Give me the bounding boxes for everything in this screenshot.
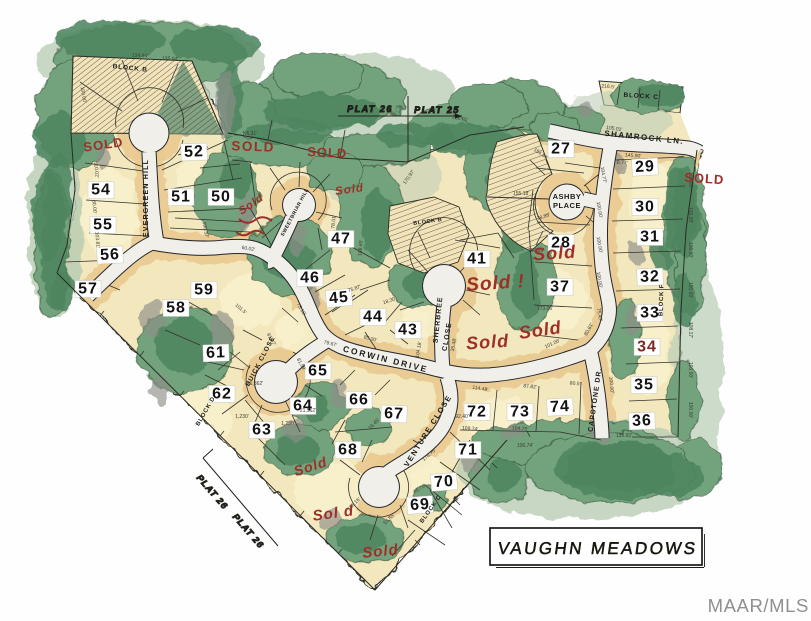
svg-text:135.92′: 135.92′ <box>616 433 632 439</box>
svg-text:63: 63 <box>252 422 272 439</box>
svg-text:37: 37 <box>550 279 570 296</box>
svg-text:Sold !: Sold ! <box>466 271 526 296</box>
svg-text:Sold: Sold <box>532 242 576 265</box>
svg-text:MAAR/MLS: MAAR/MLS <box>708 595 809 616</box>
svg-text:100.00′: 100.00′ <box>687 362 693 378</box>
svg-text:30: 30 <box>635 199 655 216</box>
svg-text:32: 32 <box>640 268 660 286</box>
svg-text:SOLD: SOLD <box>231 138 275 155</box>
svg-text:SOLD: SOLD <box>307 144 348 161</box>
svg-text:PLAT 26: PLAT 26 <box>347 104 393 114</box>
svg-text:B.77′: B.77′ <box>616 160 628 167</box>
svg-text:1,230′: 1,230′ <box>235 414 249 420</box>
svg-text:PLAT 25: PLAT 25 <box>414 105 460 115</box>
svg-text:44: 44 <box>363 309 383 326</box>
svg-text:74: 74 <box>550 398 571 416</box>
svg-text:BLOCK F: BLOCK F <box>658 284 665 316</box>
svg-text:70: 70 <box>434 473 455 491</box>
svg-text:43: 43 <box>398 322 418 339</box>
svg-text:57: 57 <box>78 281 98 298</box>
svg-text:31: 31 <box>640 229 660 246</box>
svg-text:45: 45 <box>328 289 349 308</box>
svg-text:PLACE: PLACE <box>553 201 581 210</box>
svg-text:80.00′: 80.00′ <box>90 200 97 214</box>
svg-text:51: 51 <box>171 189 191 206</box>
svg-text:92.40′: 92.40′ <box>455 414 469 420</box>
svg-text:54: 54 <box>91 182 111 199</box>
svg-text:65: 65 <box>308 363 328 380</box>
svg-text:58: 58 <box>166 300 186 317</box>
svg-text:34: 34 <box>637 339 657 356</box>
svg-text:100.00′: 100.00′ <box>687 242 693 258</box>
svg-text:134.94′: 134.94′ <box>132 53 149 60</box>
svg-text:47: 47 <box>331 231 351 248</box>
svg-text:108.17′: 108.17′ <box>687 322 693 338</box>
svg-text:78.01′: 78.01′ <box>330 215 337 229</box>
svg-text:61: 61 <box>206 344 226 362</box>
svg-text:73: 73 <box>510 404 530 421</box>
svg-text:EVERGREEN HILL: EVERGREEN HILL <box>143 159 150 237</box>
svg-text:173.06′: 173.06′ <box>537 306 553 312</box>
svg-text:66: 66 <box>349 392 369 409</box>
svg-text:46: 46 <box>300 270 320 287</box>
svg-text:21,362′: 21,362′ <box>247 381 263 387</box>
svg-text:52: 52 <box>184 143 204 161</box>
svg-text:35: 35 <box>634 377 654 394</box>
svg-text:33: 33 <box>640 305 660 322</box>
svg-text:100.00′: 100.00′ <box>687 282 693 298</box>
svg-text:216.5′: 216.5′ <box>601 84 615 91</box>
svg-text:27: 27 <box>551 141 571 158</box>
svg-text:41: 41 <box>467 251 487 268</box>
svg-text:100.00′: 100.00′ <box>687 402 693 418</box>
svg-text:68: 68 <box>338 442 358 459</box>
svg-text:Sold: Sold <box>465 331 509 354</box>
svg-text:67: 67 <box>384 405 404 423</box>
svg-text:29: 29 <box>635 158 656 176</box>
svg-text:135.04′: 135.04′ <box>162 56 179 63</box>
svg-text:71: 71 <box>458 442 478 459</box>
svg-text:36: 36 <box>632 412 652 430</box>
svg-text:1,250′: 1,250′ <box>281 421 295 427</box>
svg-text:155.18′: 155.18′ <box>513 191 529 197</box>
svg-text:87.82′: 87.82′ <box>523 383 537 390</box>
svg-text:ASHBY: ASHBY <box>553 192 582 201</box>
svg-text:50: 50 <box>211 189 231 206</box>
svg-text:106.74′: 106.74′ <box>517 443 533 449</box>
svg-text:59: 59 <box>194 282 214 299</box>
svg-text:VAUGHN MEADOWS: VAUGHN MEADOWS <box>497 539 699 558</box>
svg-text:72: 72 <box>467 404 487 421</box>
svg-text:80.5′: 80.5′ <box>570 381 581 388</box>
svg-text:SOLD: SOLD <box>684 170 725 188</box>
svg-text:56: 56 <box>100 246 121 264</box>
svg-text:21.562′: 21.562′ <box>300 408 316 414</box>
